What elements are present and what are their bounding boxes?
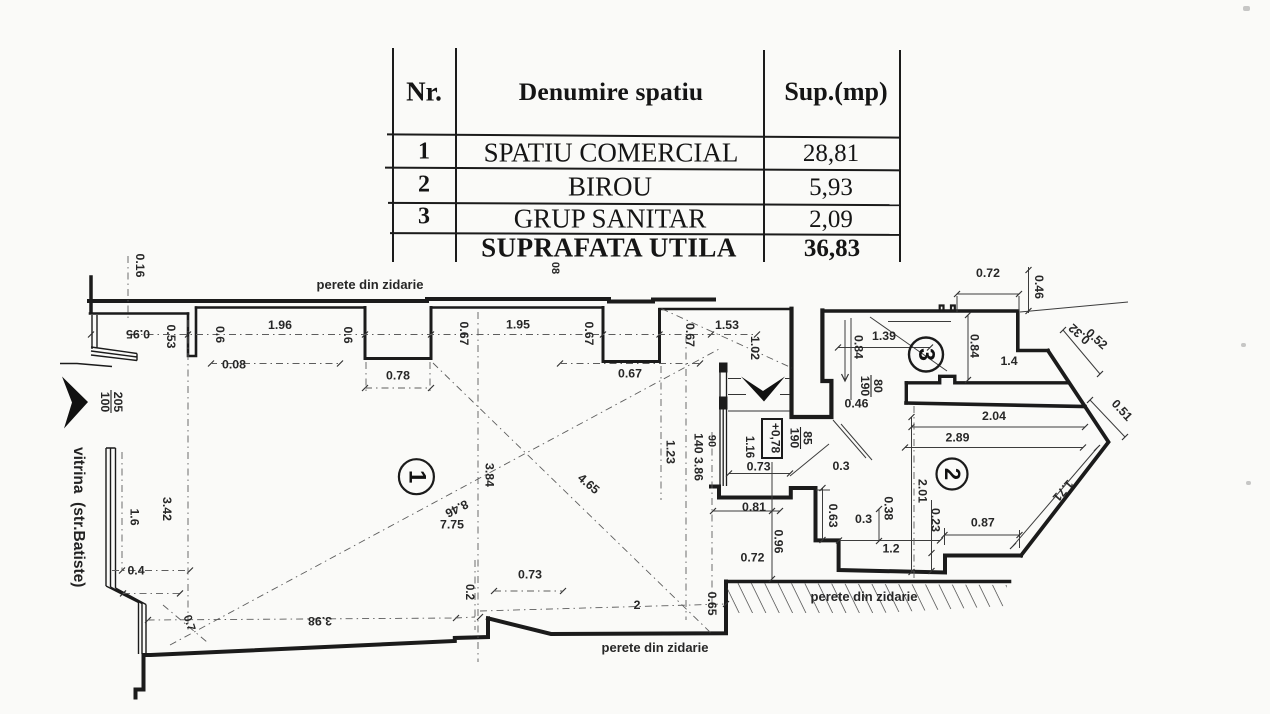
svg-text:0.51: 0.51 bbox=[1109, 397, 1136, 424]
svg-text:0.96: 0.96 bbox=[772, 530, 786, 554]
svg-text:2.01: 2.01 bbox=[916, 479, 930, 503]
svg-text:0.7: 0.7 bbox=[181, 614, 197, 633]
svg-text:3: 3 bbox=[914, 348, 940, 361]
svg-text:1.71: 1.71 bbox=[1050, 477, 1076, 504]
svg-text:0.73: 0.73 bbox=[747, 460, 771, 474]
svg-text:0.84: 0.84 bbox=[852, 335, 866, 359]
svg-text:vitrina (str.Batiste): vitrina (str.Batiste) bbox=[70, 447, 87, 587]
svg-text:0.46: 0.46 bbox=[1032, 275, 1046, 299]
svg-text:0.72: 0.72 bbox=[976, 266, 1000, 280]
svg-text:perete din zidarie: perete din zidarie bbox=[317, 277, 424, 292]
svg-text:205: 205 bbox=[111, 392, 125, 413]
svg-text:140 3.86: 140 3.86 bbox=[692, 433, 706, 481]
svg-text:1.95: 1.95 bbox=[506, 318, 530, 332]
svg-text:0.67: 0.67 bbox=[582, 322, 596, 346]
svg-text:1.39: 1.39 bbox=[872, 329, 896, 343]
svg-text:0.81: 0.81 bbox=[742, 500, 766, 514]
svg-text:1.23: 1.23 bbox=[664, 440, 678, 464]
svg-text:perete din zidarie: perete din zidarie bbox=[602, 640, 709, 655]
svg-text:90: 90 bbox=[706, 435, 718, 447]
svg-text:0.67: 0.67 bbox=[683, 323, 697, 347]
svg-text:0.23: 0.23 bbox=[929, 508, 943, 532]
svg-text:190: 190 bbox=[788, 428, 802, 449]
svg-text:+0,78: +0,78 bbox=[769, 423, 783, 454]
svg-text:190: 190 bbox=[858, 376, 872, 397]
svg-text:08: 08 bbox=[549, 262, 561, 274]
svg-text:0.84: 0.84 bbox=[968, 334, 982, 358]
svg-text:1: 1 bbox=[403, 470, 430, 483]
svg-text:0.08: 0.08 bbox=[222, 358, 246, 372]
svg-text:1.02: 1.02 bbox=[748, 336, 762, 360]
svg-text:0.72: 0.72 bbox=[741, 551, 765, 565]
svg-text:1.6: 1.6 bbox=[128, 508, 142, 525]
svg-text:1.2: 1.2 bbox=[882, 542, 899, 556]
svg-text:100: 100 bbox=[98, 392, 112, 413]
svg-text:0.32: 0.32 bbox=[1066, 321, 1093, 348]
svg-text:1.96: 1.96 bbox=[268, 318, 292, 332]
svg-text:2.89: 2.89 bbox=[946, 431, 970, 445]
svg-text:1.4: 1.4 bbox=[1000, 354, 1017, 368]
svg-text:0.87: 0.87 bbox=[971, 516, 995, 530]
svg-text:85: 85 bbox=[801, 431, 815, 445]
svg-text:2: 2 bbox=[634, 598, 641, 612]
svg-text:0.6: 0.6 bbox=[341, 326, 355, 343]
svg-text:2: 2 bbox=[940, 468, 965, 480]
svg-text:0.95: 0.95 bbox=[126, 327, 150, 341]
svg-text:0.2: 0.2 bbox=[463, 584, 475, 600]
svg-text:0.38: 0.38 bbox=[882, 496, 896, 520]
svg-text:0.3: 0.3 bbox=[855, 512, 872, 526]
svg-text:0.67: 0.67 bbox=[618, 367, 642, 381]
svg-text:perete din zidarie: perete din zidarie bbox=[811, 589, 918, 604]
svg-text:0.4: 0.4 bbox=[127, 564, 144, 578]
svg-text:0.63: 0.63 bbox=[826, 504, 840, 528]
svg-text:80: 80 bbox=[871, 379, 885, 393]
svg-text:3.84: 3.84 bbox=[483, 463, 497, 487]
svg-text:3.98: 3.98 bbox=[308, 614, 332, 628]
svg-text:3.42: 3.42 bbox=[160, 497, 174, 521]
svg-text:1.53: 1.53 bbox=[715, 318, 739, 332]
svg-text:4.65: 4.65 bbox=[575, 471, 602, 497]
svg-text:1.16: 1.16 bbox=[743, 436, 755, 458]
svg-text:0.6: 0.6 bbox=[213, 326, 227, 343]
svg-text:2.04: 2.04 bbox=[982, 409, 1006, 423]
svg-text:0.67: 0.67 bbox=[457, 322, 471, 346]
svg-text:0.73: 0.73 bbox=[518, 568, 542, 582]
svg-text:0.3: 0.3 bbox=[832, 459, 849, 473]
svg-text:0.46: 0.46 bbox=[845, 397, 869, 411]
svg-text:0.16: 0.16 bbox=[133, 254, 147, 278]
svg-text:0.53: 0.53 bbox=[164, 325, 178, 349]
svg-text:0.65: 0.65 bbox=[705, 592, 719, 616]
svg-text:0.78: 0.78 bbox=[386, 369, 410, 383]
